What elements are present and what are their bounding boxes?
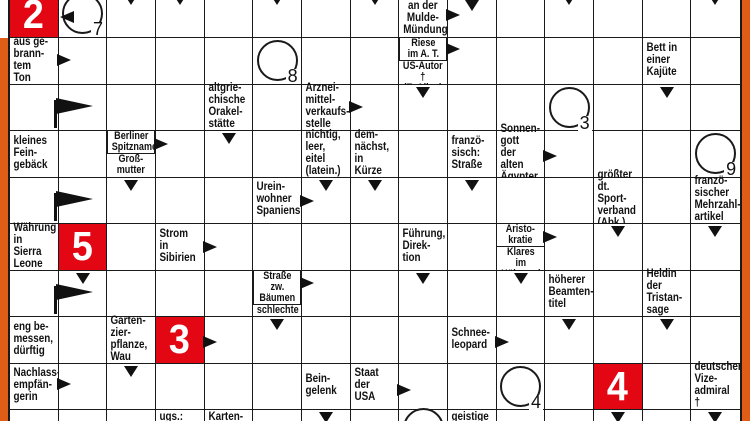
right-arrow-icon bbox=[203, 336, 217, 348]
answer-cell[interactable] bbox=[594, 0, 643, 38]
clue-text: Sonnen- gott der alten Ägypter bbox=[497, 124, 538, 184]
clue-text: Karten- bbox=[205, 410, 246, 421]
answer-cell[interactable] bbox=[59, 317, 108, 364]
clue-text: deutscher Vize- admiral † bbox=[691, 362, 733, 410]
clue-cell: kleines Fein- gebäck bbox=[10, 131, 59, 178]
clue-text: Nachlass- empfän- gerin bbox=[10, 368, 51, 404]
split-clue-cell: Riese im A. T.US-Autor † (E. Allan) bbox=[399, 38, 448, 85]
answer-cell[interactable] bbox=[351, 317, 400, 364]
answer-cell[interactable] bbox=[205, 178, 254, 225]
clue-half: Groß- mutter bbox=[107, 154, 155, 176]
clue-text: ugs.: bbox=[156, 410, 197, 421]
answer-cell[interactable] bbox=[302, 317, 351, 364]
answer-cell[interactable] bbox=[643, 131, 692, 178]
answer-cell[interactable] bbox=[545, 0, 594, 38]
answer-cell[interactable] bbox=[253, 0, 302, 38]
answer-cell[interactable] bbox=[351, 224, 400, 271]
right-arrow-icon bbox=[300, 195, 314, 207]
clue-cell: Bett in einer Kajüte bbox=[643, 38, 692, 85]
clue-cell: Bein- gelenk bbox=[302, 364, 351, 411]
solution-number: 2 bbox=[23, 0, 44, 35]
down-arrow-icon bbox=[514, 273, 528, 284]
clue-text: Urein- wohner Spaniens bbox=[253, 182, 294, 218]
answer-cell[interactable] bbox=[107, 410, 156, 421]
right-arrow-icon bbox=[543, 150, 557, 162]
clue-text: altgrie- chische Orakel- stätte bbox=[205, 83, 246, 131]
answer-cell[interactable] bbox=[545, 178, 594, 225]
clue-cell: nichtig, leer, eitel (latein.) bbox=[302, 131, 351, 178]
down-arrow-icon bbox=[319, 180, 333, 191]
clue-cell: höherer Beamten- titel bbox=[545, 271, 594, 318]
split-clue-cell: Straße zw. Bäumenschlechte Gewohnheit bbox=[253, 271, 302, 318]
clue-cell: Urein- wohner Spaniens bbox=[253, 178, 302, 225]
right-arrow-icon bbox=[349, 101, 363, 113]
down-arrow-icon bbox=[416, 87, 430, 98]
clue-text: kleines Fein- gebäck bbox=[10, 136, 51, 172]
clue-cell: dem- nächst, in Kürze bbox=[351, 131, 400, 178]
solution-circle-icon: 4 bbox=[500, 366, 541, 407]
answer-cell[interactable] bbox=[594, 85, 643, 132]
clue-cell: Garten- zier- pflanze, Wau bbox=[107, 317, 156, 364]
answer-cell[interactable] bbox=[399, 317, 448, 364]
clue-cell: Karten- bbox=[205, 410, 254, 421]
down-arrow-icon bbox=[270, 0, 284, 5]
answer-cell[interactable] bbox=[351, 38, 400, 85]
clue-cell: Heldin der Tristan- sage bbox=[643, 271, 692, 318]
clue-cell: Sonnen- gott der alten Ägypter bbox=[497, 131, 546, 178]
flag-triangle bbox=[56, 191, 93, 207]
solution-number: 4 bbox=[607, 366, 628, 407]
clue-text: Strom in Sibirien bbox=[156, 229, 197, 265]
answer-cell[interactable] bbox=[351, 271, 400, 318]
answer-cell[interactable] bbox=[351, 0, 400, 38]
clue-text: eng be- messen, dürftig bbox=[10, 322, 51, 358]
clue-text: Währung in Sierra Leone bbox=[10, 223, 51, 271]
down-arrow-icon bbox=[319, 412, 333, 421]
circled-letter-cell[interactable]: 4 bbox=[497, 364, 546, 411]
answer-cell[interactable] bbox=[302, 0, 351, 38]
answer-cell[interactable] bbox=[594, 271, 643, 318]
answer-cell[interactable] bbox=[156, 364, 205, 411]
answer-cell[interactable] bbox=[545, 410, 594, 421]
clue-text: Bett in einer Kajüte bbox=[643, 43, 684, 79]
clue-text: Schnee- leopard bbox=[448, 328, 489, 352]
right-arrow-icon bbox=[495, 336, 509, 348]
answer-cell[interactable] bbox=[448, 224, 497, 271]
clue-cell: geistige bbox=[448, 410, 497, 421]
circled-letter-cell[interactable]: 3 bbox=[545, 85, 594, 132]
answer-cell[interactable] bbox=[302, 38, 351, 85]
solution-number-box: 2 bbox=[10, 0, 58, 37]
clue-cell: größter dt. Sport- verband (Abk.) bbox=[594, 178, 643, 225]
solution-number-box: 4 bbox=[594, 364, 642, 410]
answer-cell[interactable] bbox=[59, 410, 108, 421]
clue-cell: Führung, Direk- tion bbox=[399, 224, 448, 271]
down-arrow-icon bbox=[708, 0, 722, 5]
clue-text: Berliner Spitzname bbox=[112, 131, 151, 153]
clue-text: Groß- mutter bbox=[111, 154, 151, 176]
clue-cell: Staat der USA bbox=[351, 364, 400, 411]
clue-text: dem- nächst, in Kürze bbox=[351, 130, 392, 178]
answer-cell[interactable] bbox=[545, 38, 594, 85]
down-arrow-icon bbox=[124, 366, 138, 377]
answer-cell[interactable] bbox=[59, 131, 108, 178]
answer-cell[interactable] bbox=[691, 38, 740, 85]
clue-half: Aristo- kratie bbox=[496, 224, 545, 247]
flag-icon bbox=[10, 85, 100, 131]
flag-icon bbox=[10, 178, 100, 224]
clue-cell: Schnee- leopard bbox=[448, 317, 497, 364]
solution-number-cell[interactable]: 5 bbox=[59, 224, 108, 271]
answer-cell[interactable] bbox=[205, 0, 254, 38]
solution-number-cell[interactable]: 2 bbox=[10, 0, 59, 38]
circled-letter-cell[interactable] bbox=[399, 410, 448, 421]
right-arrow-icon bbox=[57, 54, 71, 66]
solution-circle-icon bbox=[403, 408, 444, 421]
answer-cell[interactable] bbox=[205, 38, 254, 85]
answer-cell[interactable] bbox=[448, 364, 497, 411]
down-arrow-icon bbox=[465, 180, 479, 191]
clue-cell: Währung in Sierra Leone bbox=[10, 224, 59, 271]
right-arrow-icon bbox=[154, 138, 168, 150]
down-arrow-icon bbox=[660, 319, 674, 330]
clue-cell: Nachlass- empfän- gerin bbox=[10, 364, 59, 411]
down-arrow-icon bbox=[611, 226, 625, 237]
right-arrow-icon bbox=[446, 43, 460, 55]
circle-number: 4 bbox=[529, 395, 543, 410]
circle-number: 7 bbox=[91, 22, 105, 37]
right-arrow-icon bbox=[300, 277, 314, 289]
answer-cell[interactable] bbox=[691, 85, 740, 132]
answer-cell[interactable] bbox=[643, 0, 692, 38]
answer-cell[interactable] bbox=[497, 38, 546, 85]
left-arrow-icon bbox=[60, 11, 74, 23]
clue-half: Berliner Spitzname bbox=[107, 131, 156, 154]
answer-cell[interactable] bbox=[107, 85, 156, 132]
answer-cell[interactable] bbox=[643, 410, 692, 421]
clue-cell: franzö- sischer Mehrzahl- artikel bbox=[691, 178, 740, 225]
clue-text: Stadt an der Mulde- Mündung bbox=[403, 0, 444, 37]
answer-cell[interactable] bbox=[643, 178, 692, 225]
answer-cell[interactable] bbox=[156, 38, 205, 85]
answer-cell[interactable] bbox=[253, 85, 302, 132]
answer-cell[interactable] bbox=[205, 364, 254, 411]
clue-half: Straße zw. Bäumen bbox=[253, 271, 302, 305]
answer-cell[interactable] bbox=[156, 85, 205, 132]
answer-cell[interactable] bbox=[351, 410, 400, 421]
clue-text: Straße zw. Bäumen bbox=[258, 271, 297, 304]
right-arrow-icon bbox=[203, 241, 217, 253]
clue-text: Aristo- kratie bbox=[501, 224, 540, 246]
clue-text: größter dt. Sport- verband (Abk.) bbox=[594, 170, 635, 230]
circled-letter-cell[interactable]: 9 bbox=[691, 131, 740, 178]
down-arrow-icon bbox=[222, 133, 236, 144]
clue-text: geistige bbox=[448, 410, 489, 421]
down-arrow-icon bbox=[270, 319, 284, 330]
frame-left-border bbox=[0, 38, 8, 421]
clue-text: aus ge- brann- tem Ton bbox=[10, 37, 51, 85]
circle-number: 3 bbox=[578, 116, 592, 131]
circle-number: 8 bbox=[286, 69, 300, 84]
clue-cell: aus ge- brann- tem Ton bbox=[10, 38, 59, 85]
answer-cell[interactable] bbox=[156, 178, 205, 225]
down-arrow-icon bbox=[562, 0, 576, 5]
solution-number-box: 3 bbox=[156, 317, 204, 363]
answer-cell[interactable] bbox=[253, 131, 302, 178]
answer-cell[interactable] bbox=[107, 224, 156, 271]
frame-right-border bbox=[742, 0, 750, 421]
clue-text: höherer Beamten- titel bbox=[545, 275, 586, 311]
split-clue-cell: Aristo- kratieKlares im Hühnerei bbox=[497, 224, 546, 271]
clue-cell: Arznei- mittel- verkaufs- stelle bbox=[302, 85, 351, 132]
answer-cell[interactable] bbox=[302, 224, 351, 271]
clue-cell: deutscher Vize- admiral † bbox=[691, 364, 740, 411]
circled-letter-cell[interactable]: 8 bbox=[253, 38, 302, 85]
answer-cell[interactable] bbox=[253, 224, 302, 271]
answer-cell[interactable] bbox=[156, 0, 205, 38]
solution-number-cell[interactable]: 3 bbox=[156, 317, 205, 364]
answer-cell[interactable] bbox=[107, 0, 156, 38]
down-arrow-icon bbox=[416, 273, 430, 284]
clue-cell: altgrie- chische Orakel- stätte bbox=[205, 85, 254, 132]
clue-cell: franzö- sisch: Straße bbox=[448, 131, 497, 178]
solution-circle-icon: 3 bbox=[549, 87, 590, 128]
answer-cell[interactable] bbox=[107, 271, 156, 318]
answer-cell[interactable] bbox=[253, 364, 302, 411]
solution-number: 3 bbox=[169, 319, 190, 360]
flag-triangle bbox=[56, 98, 93, 114]
answer-cell[interactable] bbox=[643, 364, 692, 411]
clue-text: Heldin der Tristan- sage bbox=[643, 269, 684, 317]
flag-icon bbox=[10, 271, 100, 317]
clue-text: Riese im A. T. bbox=[404, 38, 443, 60]
answer-cell[interactable] bbox=[497, 0, 546, 38]
answer-cell[interactable] bbox=[448, 271, 497, 318]
answer-cell[interactable] bbox=[399, 131, 448, 178]
solution-circle-icon: 9 bbox=[695, 133, 736, 174]
down-arrow-icon bbox=[708, 412, 722, 421]
right-arrow-icon bbox=[543, 231, 557, 243]
answer-cell[interactable] bbox=[594, 38, 643, 85]
answer-cell[interactable] bbox=[205, 271, 254, 318]
answer-cell[interactable] bbox=[399, 178, 448, 225]
right-arrow-icon bbox=[57, 378, 71, 390]
clue-text: nichtig, leer, eitel (latein.) bbox=[302, 130, 343, 178]
answer-cell[interactable] bbox=[156, 271, 205, 318]
answer-cell[interactable] bbox=[691, 271, 740, 318]
down-arrow-icon bbox=[368, 0, 382, 5]
clue-text: Staat der USA bbox=[351, 368, 392, 404]
clue-cell: ugs.: bbox=[156, 410, 205, 421]
crossword-puzzle: 27Stadt an der Mulde- Mündungaus ge- bra… bbox=[0, 0, 750, 421]
clue-text: Garten- zier- pflanze, Wau bbox=[107, 316, 148, 364]
clue-half: Riese im A. T. bbox=[399, 38, 448, 61]
solution-number-cell[interactable]: 4 bbox=[594, 364, 643, 411]
answer-cell[interactable] bbox=[497, 178, 546, 225]
answer-cell[interactable] bbox=[643, 224, 692, 271]
down-arrow-icon bbox=[660, 87, 674, 98]
flag-triangle bbox=[56, 284, 93, 300]
right-arrow-icon bbox=[446, 9, 460, 21]
answer-cell[interactable] bbox=[594, 317, 643, 364]
solution-number: 5 bbox=[72, 226, 93, 267]
right-arrow-icon bbox=[397, 384, 411, 396]
down-arrow-icon bbox=[124, 180, 138, 191]
answer-cell[interactable] bbox=[545, 364, 594, 411]
clue-text: Führung, Direk- tion bbox=[399, 229, 440, 265]
answer-cell[interactable] bbox=[497, 410, 546, 421]
answer-cell[interactable] bbox=[253, 410, 302, 421]
down-arrow-icon bbox=[465, 0, 479, 11]
clue-cell: Stadt an der Mulde- Mündung bbox=[399, 0, 448, 38]
down-arrow-icon bbox=[173, 0, 187, 5]
down-arrow-icon bbox=[708, 226, 722, 237]
answer-cell[interactable] bbox=[107, 38, 156, 85]
down-arrow-icon bbox=[368, 180, 382, 191]
clue-text: Bein- gelenk bbox=[302, 374, 343, 398]
answer-cell[interactable] bbox=[691, 317, 740, 364]
solution-number-box: 5 bbox=[59, 224, 107, 270]
answer-cell[interactable] bbox=[691, 0, 740, 38]
answer-cell[interactable] bbox=[10, 410, 59, 421]
crossword-grid: 27Stadt an der Mulde- Mündungaus ge- bra… bbox=[8, 0, 742, 421]
clue-text: franzö- sischer Mehrzahl- artikel bbox=[691, 176, 733, 224]
clue-text: Arznei- mittel- verkaufs- stelle bbox=[302, 83, 343, 131]
split-clue-cell: Berliner SpitznameGroß- mutter bbox=[107, 131, 156, 178]
down-arrow-icon bbox=[124, 0, 138, 5]
clue-text: franzö- sisch: Straße bbox=[448, 136, 489, 172]
down-arrow-icon bbox=[562, 319, 576, 330]
clue-cell: eng be- messen, dürftig bbox=[10, 317, 59, 364]
clue-cell: Strom in Sibirien bbox=[156, 224, 205, 271]
solution-circle-icon: 8 bbox=[257, 40, 298, 81]
down-arrow-icon bbox=[611, 412, 625, 421]
answer-cell[interactable] bbox=[448, 85, 497, 132]
